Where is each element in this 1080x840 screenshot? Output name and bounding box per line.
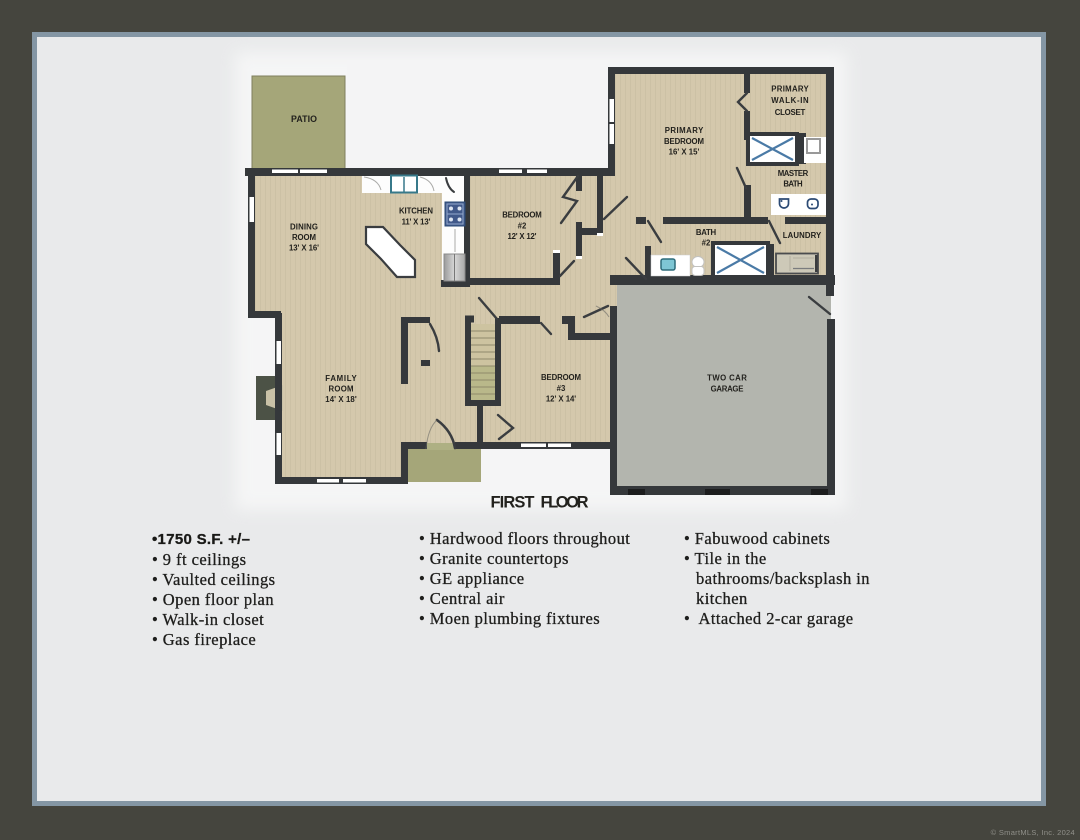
- svg-text:12' X 12': 12' X 12': [508, 232, 537, 241]
- svg-text:LAUNDRY: LAUNDRY: [783, 231, 822, 240]
- svg-text:13' X 16': 13' X 16': [289, 244, 319, 253]
- svg-text:PRIMARY: PRIMARY: [665, 126, 704, 135]
- svg-text:CLOSET: CLOSET: [775, 108, 806, 117]
- svg-text:FLOOR: FLOOR: [541, 494, 589, 512]
- svg-text:ROOM: ROOM: [292, 233, 316, 242]
- svg-text:KITCHEN: KITCHEN: [399, 207, 433, 216]
- svg-text:PATIO: PATIO: [291, 114, 317, 124]
- svg-text:BATH: BATH: [696, 228, 717, 237]
- svg-text:ROOM: ROOM: [329, 385, 354, 394]
- svg-text:11' X 13': 11' X 13': [402, 218, 431, 227]
- svg-text:BATH: BATH: [783, 180, 803, 189]
- svg-text:#2: #2: [518, 222, 527, 231]
- svg-text:MASTER: MASTER: [778, 169, 809, 178]
- svg-text:TWO CAR: TWO CAR: [707, 374, 747, 383]
- svg-text:BEDROOM: BEDROOM: [541, 373, 581, 382]
- svg-text:FIRST: FIRST: [491, 494, 535, 512]
- svg-text:#3: #3: [557, 384, 566, 393]
- svg-text:GARAGE: GARAGE: [711, 385, 744, 394]
- svg-text:16' X 15': 16' X 15': [669, 148, 700, 157]
- svg-text:12' X 14': 12' X 14': [546, 395, 576, 404]
- svg-text:BEDROOM: BEDROOM: [502, 211, 542, 220]
- svg-text:14' X 18': 14' X 18': [325, 395, 357, 404]
- svg-text:DINING: DINING: [290, 223, 318, 232]
- svg-text:FAMILY: FAMILY: [325, 374, 357, 383]
- svg-text:PRIMARY: PRIMARY: [771, 85, 809, 94]
- svg-text:WALK-IN: WALK-IN: [771, 96, 809, 105]
- svg-text:BEDROOM: BEDROOM: [664, 137, 704, 146]
- svg-text:#2: #2: [702, 239, 711, 248]
